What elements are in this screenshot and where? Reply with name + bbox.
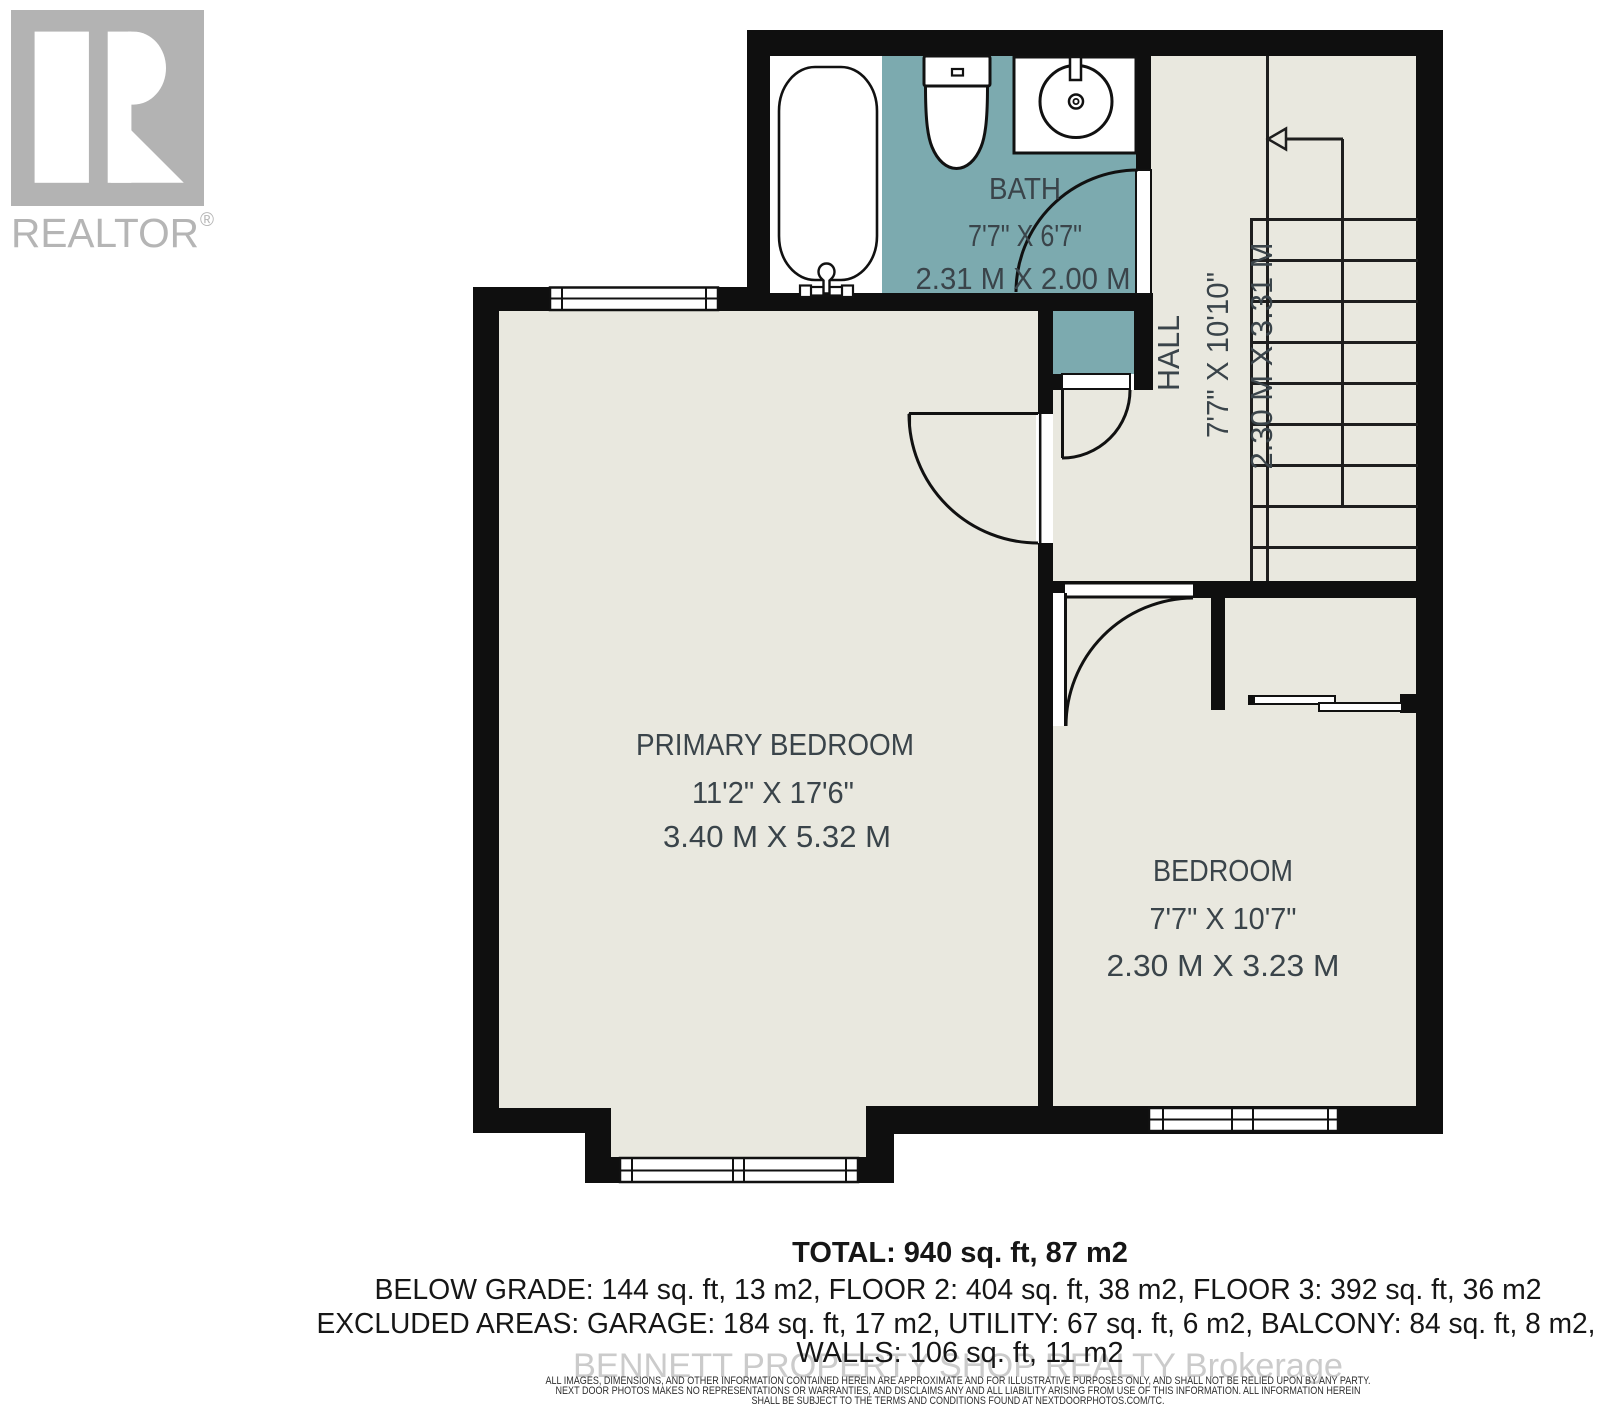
svg-text:BATH: BATH <box>989 171 1061 206</box>
svg-text:3.40 M X 5.32 M: 3.40 M X 5.32 M <box>663 819 891 854</box>
svg-text:TOTAL: 940 sq. ft, 87 m2: TOTAL: 940 sq. ft, 87 m2 <box>792 1237 1128 1269</box>
svg-text:7'7" X 10'7": 7'7" X 10'7" <box>1150 901 1297 936</box>
svg-text:REALTOR: REALTOR <box>11 210 199 256</box>
svg-text:WALLS: 106 sq. ft, 11 m2: WALLS: 106 sq. ft, 11 m2 <box>796 1337 1123 1369</box>
svg-text:BELOW GRADE: 144 sq. ft, 13 m2: BELOW GRADE: 144 sq. ft, 13 m2, FLOOR 2:… <box>375 1274 1542 1306</box>
svg-text:7'7" X 10'10": 7'7" X 10'10" <box>1200 272 1235 438</box>
svg-text:11'2" X 17'6": 11'2" X 17'6" <box>692 775 854 810</box>
svg-text:PRIMARY BEDROOM: PRIMARY BEDROOM <box>636 727 914 762</box>
svg-text:2.30 M X 3.23 M: 2.30 M X 3.23 M <box>1107 948 1340 983</box>
svg-text:7'7" X 6'7": 7'7" X 6'7" <box>968 218 1082 253</box>
svg-text:®: ® <box>200 210 214 231</box>
svg-text:2.31 M X 2.00 M: 2.31 M X 2.00 M <box>916 261 1131 296</box>
svg-text:HALL: HALL <box>1151 315 1186 391</box>
svg-text:SHALL BE SUBJECT TO THE TERMS: SHALL BE SUBJECT TO THE TERMS AND CONDIT… <box>752 1395 1165 1407</box>
svg-text:BEDROOM: BEDROOM <box>1153 853 1293 888</box>
svg-text:EXCLUDED AREAS: GARAGE: 184 sq: EXCLUDED AREAS: GARAGE: 184 sq. ft, 17 m… <box>317 1308 1596 1340</box>
svg-text:2.30 M X 3.31 M: 2.30 M X 3.31 M <box>1244 243 1279 470</box>
